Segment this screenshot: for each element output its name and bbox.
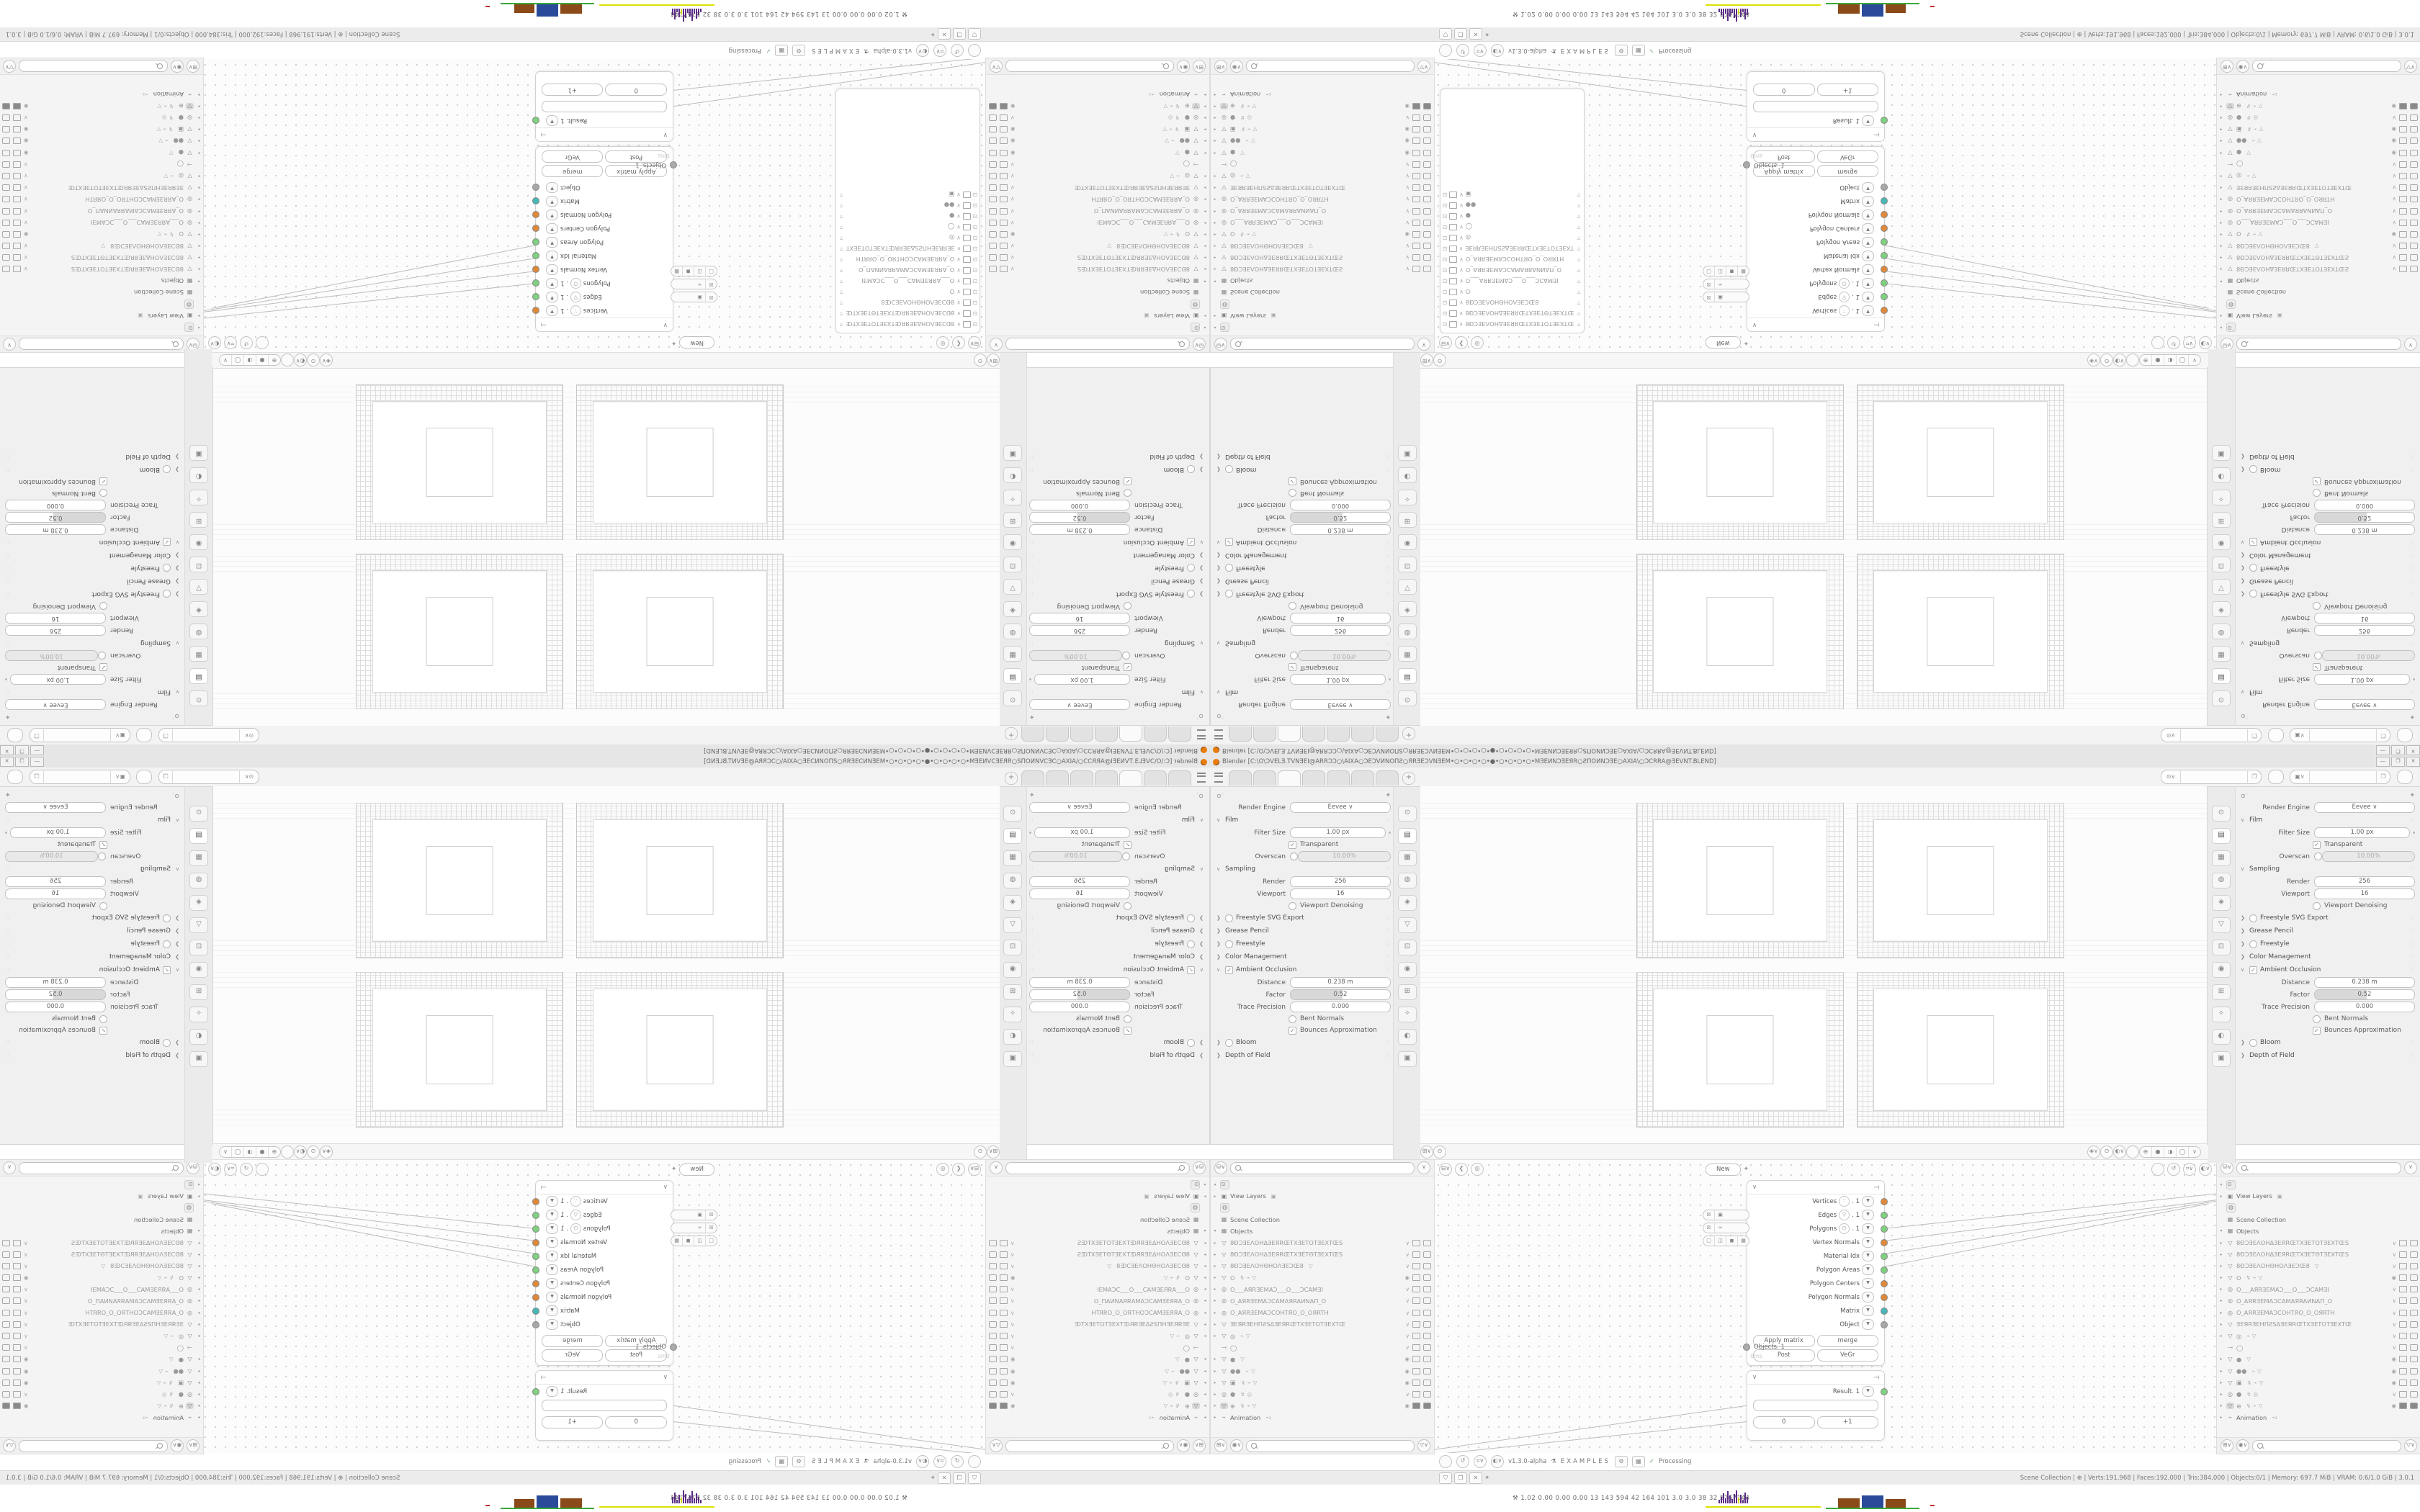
outliner-object-row[interactable]: ▸▽8ƉƆƎEΛOHΘHOΛƎEƆŒ8▽∨ (2218, 1260, 2419, 1272)
checkbox-unchecked[interactable] (1289, 1015, 1296, 1023)
filter-dropdown[interactable]: ∨ (2404, 338, 2417, 351)
outliner-object-row[interactable]: ▸◎O_AЯRƎEMAƆCOHTЯO_O_OЯRTH∨ (2218, 1307, 2419, 1318)
section-color-management[interactable]: ❯Color Management∷ (2, 549, 182, 562)
screen-toggle-icon[interactable] (13, 231, 21, 238)
checkbox-unchecked[interactable] (99, 902, 107, 910)
title-bar[interactable]: Blender [C:\O\ƆVELƎ.TVNƎEI@ARRƆƆ○\AIXA○Ɔ… (0, 744, 1210, 756)
checkbox-unchecked[interactable] (1124, 1015, 1131, 1023)
checkbox-unchecked[interactable] (99, 490, 107, 498)
input-socket[interactable] (1743, 1344, 1750, 1351)
new-scene-button[interactable] (136, 728, 152, 742)
properties-tab-icon[interactable]: ▦ (2212, 850, 2231, 866)
object-list-row[interactable]: ⊡∨◯▽ (838, 222, 977, 233)
screen-toggle-icon[interactable] (13, 1333, 21, 1339)
camera-toggle-icon[interactable] (2410, 138, 2418, 144)
chevron-icon[interactable]: ∨ (1406, 161, 1410, 168)
screen-toggle-icon[interactable] (1000, 231, 1008, 238)
scene-name-field[interactable] (2181, 771, 2247, 783)
screen-toggle-icon[interactable] (2399, 1310, 2407, 1316)
camera-toggle-icon[interactable] (2, 114, 10, 121)
panel-icon[interactable]: ▦ (1632, 45, 1645, 56)
workspace-tab[interactable] (1327, 726, 1350, 742)
properties-tab-icon[interactable]: ⊙ (1398, 690, 1417, 706)
value-field-render-engine[interactable]: Eevee ∨ (1029, 802, 1130, 813)
outliner-object-row[interactable]: ▸◎O_AЯRƎEMAƆCAMAЯRAИNAП_O∨ (1212, 1295, 1433, 1307)
output-dropdown[interactable]: ▼ (546, 223, 558, 234)
minimize-button[interactable]: ― (30, 757, 44, 767)
camera-toggle-icon[interactable] (1423, 220, 1431, 226)
outliner-object-row[interactable]: ▸◎O_AЯRƎEMAƆCOHTЯO_O_OЯRTH∨ (987, 194, 1208, 205)
toggle-circle[interactable] (1290, 652, 1298, 660)
chevron-icon[interactable]: ∨ (24, 161, 28, 168)
checkbox-checked[interactable]: ✓ (1289, 1027, 1296, 1035)
object-list-row[interactable]: ⊡∨8ƉƆƎEΛOHΘHOΛƎEƆŒ8▽ (1443, 297, 1582, 308)
screen-toggle-icon[interactable] (1412, 208, 1420, 215)
chevron-icon[interactable]: ∨ (1459, 246, 1464, 252)
section-sampling[interactable]: ∨Sampling∷ (2, 636, 182, 649)
examples-menu[interactable]: EXAMPLES (1561, 1458, 1610, 1465)
checkbox-checked[interactable]: ✓ (1225, 966, 1233, 974)
outliner-object-row[interactable]: ▸▽8ƉƆƎEΛOHΔƎEЯRŒTXƎETΘTƎEXTŒS∨ (1, 252, 202, 264)
camera-toggle-icon[interactable] (2, 1321, 10, 1328)
shading-sphere-icon[interactable]: ◐∨ (208, 1163, 221, 1176)
target-icon[interactable]: ◎ (1471, 336, 1484, 349)
outliner-object-row[interactable]: ▸◎O_AЯRƎEMAƆCAMAЯRAИNAП_O∨ (2218, 1295, 2419, 1307)
object-list-row[interactable]: ⊡∨8ƉƆƎEΛOHΔƎEЯRŒTXƎETOTƎEXTŒS▽ (838, 319, 977, 330)
copy-layer-icon[interactable]: ❐ (2376, 771, 2390, 783)
toggle-icon[interactable]: ◫ (1714, 266, 1726, 276)
output-dropdown[interactable]: ▼ (1862, 305, 1874, 316)
display-mode-dropdown[interactable]: ⛁∨ (187, 1161, 200, 1174)
outliner-animation-row[interactable]: ▸⌁Animation⌁₂ (987, 1412, 1208, 1423)
restriction-dropdown[interactable]: ⊞∨ (1214, 60, 1227, 73)
properties-tab-icon[interactable]: ◐ (189, 1029, 208, 1045)
camera-toggle-icon[interactable] (989, 1310, 997, 1316)
view-layer-selector[interactable]: ▣∨ ❐ (2290, 728, 2390, 742)
search-input[interactable] (1230, 1162, 1415, 1174)
search-input[interactable] (2252, 1440, 2401, 1452)
outliner-object-row[interactable]: ⟞◯∨ (987, 158, 1208, 170)
screen-toggle-icon[interactable] (13, 1263, 21, 1269)
outliner-view-layers-row[interactable]: ▸▣View Layers▣ (1212, 310, 1433, 322)
editor-blank-icon[interactable] (1439, 1455, 1452, 1468)
object-list-row[interactable]: ⊡∨ƎEЯRƎEHПƧSΔƎEЯRŒTXƎETOTƎEXTŒ▽ (838, 243, 977, 254)
shading-mode-3[interactable]: ◯ (232, 355, 244, 365)
chevron-icon[interactable]: ∨ (1010, 208, 1015, 215)
camera-toggle-icon[interactable] (2, 161, 10, 168)
screen-toggle-icon[interactable] (963, 300, 971, 306)
toggle-circle[interactable] (1187, 1039, 1195, 1047)
outliner-object-row[interactable]: ▸▽●●⌁▽◉ (987, 135, 1208, 147)
screen-toggle-icon[interactable] (2399, 1333, 2407, 1339)
screen-toggle-icon[interactable] (2399, 1344, 2407, 1351)
filter-icon[interactable]: ⊙˙ (171, 714, 179, 720)
screen-toggle-icon[interactable] (1412, 1274, 1420, 1281)
screen-toggle-icon[interactable] (13, 114, 21, 121)
screen-toggle-icon[interactable] (13, 1344, 21, 1351)
camera-toggle-icon[interactable] (989, 114, 997, 121)
chevron-icon[interactable]: ∨ (956, 300, 961, 306)
properties-tab-icon[interactable]: ◐ (1003, 1029, 1022, 1045)
sverchok-node-editor[interactable]: ⊟∨❮◎New✦↺⌗∨◐∨∨⟞Vertices∵. 1▼Edges▽. 1▼Po… (1433, 1159, 2216, 1454)
funnel-filter-icon[interactable]: ▽∨ (2404, 1439, 2417, 1452)
shading-sphere-icon[interactable]: ◐∨ (2199, 336, 2212, 349)
outliner-objects-collection-row[interactable]: ▾▦Objects (1212, 275, 1433, 287)
properties-tab-icon[interactable]: ◉ (189, 534, 208, 550)
chevron-icon[interactable]: ∨ (956, 224, 961, 230)
outliner-object-row[interactable]: ▸▽●●⌁▽◉ (1212, 1365, 1433, 1377)
camera-toggle-icon[interactable] (1423, 1297, 1431, 1304)
chevron-icon[interactable]: ∨ (1406, 243, 1410, 249)
collapse-chevron-icon[interactable]: ∨ (663, 321, 668, 328)
step-button[interactable]: +1 (542, 1416, 604, 1428)
camera-toggle-icon[interactable] (2, 173, 10, 179)
funnel-filter-icon[interactable]: ▽∨ (990, 1439, 1003, 1452)
search-input[interactable] (1005, 338, 1190, 351)
empty-circle[interactable] (2126, 354, 2139, 366)
camera-toggle-icon[interactable] (1423, 103, 1431, 109)
checkbox-unchecked[interactable] (1124, 902, 1131, 910)
output-socket[interactable] (1881, 1321, 1888, 1328)
camera-toggle-icon[interactable] (1423, 196, 1431, 202)
camera-toggle-icon[interactable] (2410, 243, 2418, 249)
screen-toggle-icon[interactable] (13, 1391, 21, 1398)
screen-toggle-icon[interactable] (1412, 138, 1420, 144)
camera-toggle-icon[interactable]: ⊡ (1443, 202, 1447, 209)
editor-type-icon[interactable]: ⊞∨ (1420, 1146, 1433, 1158)
editor-type-icon[interactable]: ⊟∨ (968, 336, 981, 349)
value-field-overscan[interactable]: 10.00% (1298, 650, 1391, 661)
camera-toggle-icon[interactable] (1423, 1391, 1431, 1398)
copy-layer-icon[interactable]: ❐ (2376, 729, 2390, 741)
chevron-icon[interactable]: ∨ (1406, 220, 1410, 226)
outliner-world-row[interactable]: ◍ (987, 298, 1208, 310)
outliner-object-row[interactable]: ⟞◯∨ (1, 158, 202, 170)
filter-dropdown[interactable]: ∨ (1417, 338, 1430, 351)
output-socket[interactable] (1881, 294, 1888, 301)
input-socket[interactable] (1743, 161, 1750, 168)
outliner-object-row[interactable]: ▸◎●↯◎∨ (1, 112, 202, 123)
properties-tab-icon[interactable]: ▽ (2212, 579, 2231, 595)
screen-toggle-icon[interactable] (963, 213, 971, 220)
properties-tab-icon[interactable]: ⊙ (189, 690, 208, 706)
screen-toggle-icon[interactable] (2399, 103, 2407, 109)
toggle-icon[interactable]: ☒ (1703, 292, 1714, 302)
display-mode-dropdown[interactable]: ⛁∨ (1214, 1161, 1227, 1174)
section-grease-pencil[interactable]: ❯Grease Pencil∷ (2, 924, 182, 937)
screen-toggle-icon[interactable] (13, 1321, 21, 1328)
properties-tab-icon[interactable]: ✧ (189, 490, 208, 505)
value-field-viewport[interactable]: 16 (5, 888, 106, 899)
output-socket[interactable] (532, 184, 539, 192)
object-list-row[interactable]: ⊡∨O▽ (838, 287, 977, 297)
screen-toggle-icon[interactable] (2399, 114, 2407, 121)
outliner-object-row[interactable]: ▸◎●↯◎∨ (1212, 112, 1433, 123)
outliner-scene-row[interactable]: ▾⊙˙ (1212, 322, 1433, 333)
screen-toggle-icon[interactable] (13, 150, 21, 156)
camera-toggle-icon[interactable] (989, 173, 997, 179)
collapse-chevron-icon[interactable]: ∨ (663, 1184, 668, 1191)
object-list-row[interactable]: ⊡∨◎▽ (1443, 233, 1582, 243)
outliner-scene-row[interactable]: ▾⊙˙ (987, 1179, 1208, 1190)
output-dropdown[interactable]: ▼ (1862, 1386, 1874, 1397)
properties-tab-icon[interactable]: ⊡ (1398, 557, 1417, 572)
properties-tab-icon[interactable]: ⊡ (189, 940, 208, 955)
screen-toggle-icon[interactable] (13, 243, 21, 249)
output-socket[interactable] (532, 1253, 539, 1260)
camera-toggle-icon[interactable] (1423, 1286, 1431, 1292)
camera-toggle-icon[interactable] (2, 196, 10, 202)
screen-toggle-icon[interactable] (2399, 138, 2407, 144)
maximize-button[interactable]: ❐ (15, 745, 29, 755)
properties-tab-icon[interactable]: ◐ (189, 467, 208, 483)
filter-dropdown[interactable]: ∨ (3, 338, 16, 351)
camera-toggle-icon[interactable] (1423, 231, 1431, 238)
chevron-icon[interactable]: ∨ (1406, 1263, 1410, 1269)
eye-icon[interactable]: ◉ (24, 126, 29, 132)
outliner-object-row[interactable]: ▸▽◎⌁▽∨ (1212, 1330, 1433, 1341)
camera-toggle-icon[interactable] (989, 1240, 997, 1246)
outliner-object-row[interactable]: ▸▽◎⌁▽∨ (1, 1330, 202, 1341)
properties-tab-icon[interactable]: ⊙ (2212, 690, 2231, 706)
value-field-factor[interactable]: 0.52 (1290, 989, 1391, 1000)
camera-toggle-icon[interactable] (989, 1403, 997, 1409)
screen-toggle-icon[interactable] (13, 1380, 21, 1386)
camera-toggle-icon[interactable] (2410, 1286, 2418, 1292)
pin-icon[interactable]: ✦ (1029, 792, 1035, 799)
checkbox-checked[interactable]: ✓ (163, 966, 171, 974)
outliner-object-row[interactable]: ▸▽⊕↯⌁▽◉ (1, 100, 202, 112)
chevron-icon[interactable]: ∨ (957, 246, 962, 252)
output-dropdown[interactable]: ▼ (546, 1292, 558, 1302)
back-icon[interactable]: ❮ (1455, 1163, 1468, 1176)
screen-toggle-icon[interactable] (13, 266, 21, 272)
chevron-icon[interactable]: ∨ (2393, 1240, 2397, 1246)
output-socket[interactable] (1881, 1294, 1888, 1301)
chevron-icon[interactable]: ∨ (24, 1251, 28, 1258)
screen-toggle-icon[interactable] (1412, 1344, 1420, 1351)
chevron-icon[interactable]: ∨ (956, 192, 961, 198)
vegr-button[interactable]: VeGr (542, 1349, 604, 1362)
chevron-icon[interactable]: ∨ (1406, 1333, 1410, 1339)
add-workspace-button[interactable]: + (1402, 772, 1415, 785)
camera-toggle-icon[interactable] (2, 1240, 10, 1246)
screen-toggle-icon[interactable] (1412, 1391, 1420, 1398)
camera-toggle-icon[interactable] (2, 231, 10, 238)
output-dropdown[interactable]: ▼ (1862, 1196, 1874, 1207)
camera-toggle-icon[interactable]: ⊡ (973, 192, 977, 198)
output-dropdown[interactable]: ▼ (546, 196, 558, 207)
properties-tab-icon[interactable]: ✧ (1003, 490, 1022, 505)
eye-icon[interactable]: ◉ (24, 1368, 29, 1374)
tool-icon[interactable]: ⚙ (792, 45, 805, 56)
checkbox-unchecked[interactable] (1124, 603, 1131, 611)
eye-icon[interactable]: ◉ (2391, 150, 2396, 156)
shading-mode-0[interactable]: ⊕ (2140, 355, 2151, 365)
properties-tab-icon[interactable]: ▤ (189, 828, 208, 844)
outliner-scene-collection-row[interactable]: ▦Scene Collection (987, 287, 1208, 298)
eye-icon[interactable]: ◉ (1010, 103, 1016, 109)
output-socket[interactable] (532, 225, 539, 233)
value-field-viewport[interactable]: 16 (5, 613, 106, 624)
empty-circle[interactable] (2151, 1163, 2164, 1176)
outliner-object-row[interactable]: ▸▽O↯⌁▽◉ (987, 228, 1208, 240)
shading-mode-2[interactable]: ◑ (2164, 1147, 2176, 1157)
value-field-factor[interactable]: 0.52 (5, 512, 106, 523)
camera-toggle-icon[interactable]: ⊡ (973, 246, 977, 252)
outliner-object-row[interactable]: ▸▽8ƉƆƎEΛOHΘHOΛƎEƆŒ8▽∨ (2218, 240, 2419, 252)
filter-icon[interactable]: ⊙˙ (171, 793, 179, 799)
toggle-icon[interactable]: ∞ (1714, 1223, 1726, 1233)
camera-toggle-icon[interactable] (989, 254, 997, 261)
properties-tab-icon[interactable]: ▽ (1003, 579, 1022, 595)
value-field-distance[interactable]: 0.238 m (5, 524, 106, 535)
output-dropdown[interactable]: ▼ (546, 182, 558, 193)
screen-toggle-icon[interactable] (1000, 1356, 1008, 1362)
scene-selector[interactable]: ⊙∨ ❐ (158, 770, 259, 784)
value-field-trace-precision[interactable]: 0.000 (1290, 500, 1391, 510)
eye-icon[interactable]: ◉ (2391, 1403, 2396, 1409)
output-dropdown[interactable]: ▼ (546, 115, 558, 126)
target-icon[interactable]: ◎ (936, 336, 949, 349)
properties-tab-icon[interactable]: ◈ (2212, 895, 2231, 911)
checkbox-checked[interactable]: ✓ (99, 478, 107, 486)
toggle-circle[interactable] (1225, 940, 1233, 948)
section-sampling[interactable]: ∨Sampling∷ (1026, 636, 1206, 649)
output-dropdown[interactable]: ▼ (546, 1264, 558, 1275)
object-filter-dropdown[interactable]: ◉∨ (1230, 1439, 1243, 1452)
outliner-object-row[interactable]: ▸◎O_AЯRƎEMAƆCAMAЯRAИNAП_O∨ (1212, 205, 1433, 217)
toggle-icon[interactable]: ▣ (1714, 292, 1726, 302)
screen-toggle-icon[interactable] (1000, 1403, 1008, 1409)
toggle-circle[interactable] (163, 590, 171, 598)
screen-toggle-icon[interactable] (1449, 224, 1457, 230)
snap-magnet-icon[interactable]: ◈∨ (320, 1146, 333, 1158)
camera-toggle-icon[interactable] (1423, 114, 1431, 121)
chevron-icon[interactable]: ∨ (1406, 114, 1410, 121)
camera-toggle-icon[interactable] (2, 138, 10, 144)
screen-toggle-icon[interactable] (13, 208, 21, 215)
output-dropdown[interactable]: ▼ (1862, 223, 1874, 234)
properties-tab-icon[interactable]: ▤ (1398, 668, 1417, 684)
output-dropdown[interactable]: ▼ (546, 305, 558, 316)
outliner-object-row[interactable]: ▸▽◎⌁▽∨ (987, 170, 1208, 181)
screen-toggle-icon[interactable] (963, 256, 971, 263)
section-ambient-occlusion[interactable]: ∨✓Ambient Occlusion∷ (2, 963, 182, 976)
chevron-icon[interactable]: ∨ (2393, 208, 2397, 215)
screen-toggle-icon[interactable] (963, 224, 971, 230)
workspace-tab[interactable] (1144, 770, 1167, 786)
output-socket[interactable] (1881, 225, 1888, 233)
screen-toggle-icon[interactable] (1000, 1333, 1008, 1339)
camera-toggle-icon[interactable] (2, 1380, 10, 1386)
outliner-object-row[interactable]: ▸◎O___AЯRƎEMAƆ___O___ƆCAMƎI∨ (2218, 217, 2419, 228)
outliner-object-row[interactable]: ▸▽●●⌁▽◉ (1, 1365, 202, 1377)
outliner-object-row[interactable]: ▸◎●↯◎∨ (987, 112, 1208, 123)
objects-in-node[interactable]: ∨⟞Vertices∵. 1▼Edges▽. 1▼Polygons⬡. 1▼Ve… (535, 146, 673, 332)
chevron-icon[interactable]: ∨ (24, 1286, 28, 1292)
pin-icon[interactable]: ✦ (671, 339, 677, 346)
outliner-object-row[interactable]: ▸◎O___AЯRƎEMAƆ___O___ƆCAMƎI∨ (1212, 1284, 1433, 1295)
toggle-icon[interactable]: □ (706, 266, 717, 276)
outliner-scene-collection-row[interactable]: ▦Scene Collection (1212, 1214, 1433, 1225)
toggle-circle[interactable] (163, 466, 171, 474)
screen-toggle-icon[interactable] (963, 289, 971, 295)
chevron-icon[interactable]: ∨ (1459, 224, 1464, 230)
minimize-button[interactable]: ― (2376, 745, 2390, 755)
editor-type-icon[interactable]: ⊟∨ (1439, 1163, 1452, 1176)
properties-tab-icon[interactable]: ◉ (189, 962, 208, 978)
workspace-tab[interactable] (1302, 726, 1325, 742)
section-grease-pencil[interactable]: ❯Grease Pencil∷ (1026, 575, 1206, 588)
screen-toggle-icon[interactable] (1412, 254, 1420, 261)
output-dropdown[interactable]: ▼ (1862, 251, 1874, 261)
chevron-icon[interactable]: ∨ (24, 1297, 28, 1304)
restriction-dropdown[interactable]: ⊞∨ (1193, 1439, 1206, 1452)
outliner-object-row[interactable]: ▸▽●▽◉ (987, 1354, 1208, 1365)
section-bloom[interactable]: ❯Bloom∷ (1026, 1036, 1206, 1049)
value-field-render[interactable]: 256 (2314, 876, 2415, 887)
properties-tab-icon[interactable]: ▣ (1003, 1051, 1022, 1067)
chevron-icon[interactable]: ∨ (1459, 213, 1464, 220)
chevron-icon[interactable]: ∨ (2393, 184, 2397, 191)
camera-toggle-icon[interactable] (2410, 208, 2418, 215)
screen-toggle-icon[interactable] (1412, 103, 1420, 109)
output-dropdown[interactable]: ▼ (1862, 292, 1874, 302)
toggle-circle[interactable] (2249, 1039, 2257, 1047)
camera-toggle-icon[interactable] (2, 184, 10, 191)
output-dropdown[interactable]: ▼ (1862, 1237, 1874, 1248)
screen-toggle-icon[interactable] (1412, 1251, 1420, 1258)
scene-name-field[interactable] (173, 771, 239, 783)
pin-icon[interactable]: ✦ (930, 30, 936, 37)
screen-toggle-icon[interactable] (1449, 192, 1457, 198)
pin-icon[interactable]: ✦ (1744, 339, 1749, 346)
section-film[interactable]: ∨Film∷ (1026, 814, 1206, 827)
chevron-icon[interactable]: ∨ (24, 184, 28, 191)
outliner-object-row[interactable]: ▸▽▣↯⌁▽◉ (2218, 1377, 2419, 1388)
viewport-shading-widget[interactable]: ⊕●◑◯∨ (2139, 1146, 2201, 1158)
section-depth-of-field[interactable]: ❯Depth of Field∷ (1026, 450, 1206, 463)
section-film[interactable]: ∨Film∷ (1026, 685, 1206, 698)
camera-toggle-icon[interactable] (989, 150, 997, 156)
outliner-scene-row[interactable]: ▾⊙˙ (987, 322, 1208, 333)
outliner-animation-row[interactable]: ▸⌁Animation⌁₂ (987, 89, 1208, 100)
editor-type-icon[interactable]: ⊟∨ (968, 1163, 981, 1176)
snap-magnet-icon[interactable]: ◈∨ (2087, 1146, 2100, 1158)
camera-toggle-icon[interactable] (1423, 173, 1431, 179)
chevron-icon[interactable]: ∨ (1406, 196, 1410, 202)
screen-toggle-icon[interactable] (1449, 235, 1457, 241)
properties-tab-icon[interactable]: ◍ (189, 873, 208, 888)
screen-toggle-icon[interactable] (1000, 1286, 1008, 1292)
object-list-row[interactable]: ⊡∨8ƉƆƎEΛOHΘHOΛƎEƆŒ8▽ (838, 297, 977, 308)
search-input[interactable] (19, 60, 168, 73)
chevron-icon[interactable]: ∨ (956, 202, 961, 209)
tool-icon[interactable]: ⚙ (792, 1456, 805, 1467)
chevron-icon[interactable]: ∨ (1010, 254, 1015, 261)
screen-toggle-icon[interactable] (13, 161, 21, 168)
camera-toggle-icon[interactable] (1423, 243, 1431, 249)
shading-mode-0[interactable]: ⊕ (269, 355, 280, 365)
chevron-icon[interactable]: ∨ (1459, 310, 1464, 317)
search-input[interactable] (2252, 60, 2401, 73)
chevron-icon[interactable]: ∨ (24, 1321, 28, 1328)
section-ambient-occlusion[interactable]: ∨✓Ambient Occlusion∷ (2238, 963, 2418, 976)
outliner-object-row[interactable]: ▸▽O↯⌁▽◉ (1212, 1272, 1433, 1284)
viewport-shading-widget[interactable]: ⊕●◑◯∨ (219, 1146, 281, 1158)
editor-type-icon[interactable]: ⊞∨ (987, 354, 1000, 366)
